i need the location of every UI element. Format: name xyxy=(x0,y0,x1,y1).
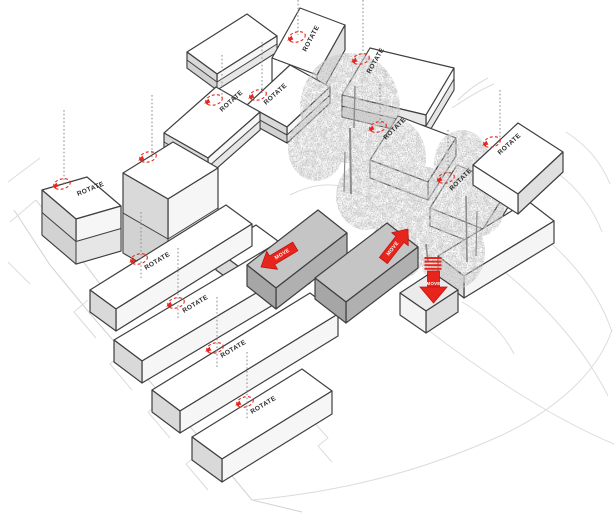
contour-line xyxy=(462,302,514,354)
contour-line xyxy=(8,158,40,182)
diagram-canvas: ROTATEROTATEROTATEROTATEROTATEROTATEROTA… xyxy=(0,0,616,524)
building-b4 xyxy=(187,14,277,90)
move-label: MOVE xyxy=(427,281,441,286)
tree-trunk xyxy=(354,86,355,128)
site-axonometric-diagram: ROTATEROTATEROTATEROTATEROTATEROTATEROTA… xyxy=(0,0,616,524)
contour-line xyxy=(556,172,602,232)
contour-line xyxy=(312,420,332,462)
contour-line xyxy=(428,330,614,444)
tree-trunk xyxy=(350,128,351,194)
contour-line xyxy=(8,262,30,284)
tree-trunk xyxy=(466,196,467,262)
contour-line xyxy=(566,132,610,184)
contour-line xyxy=(10,200,36,222)
